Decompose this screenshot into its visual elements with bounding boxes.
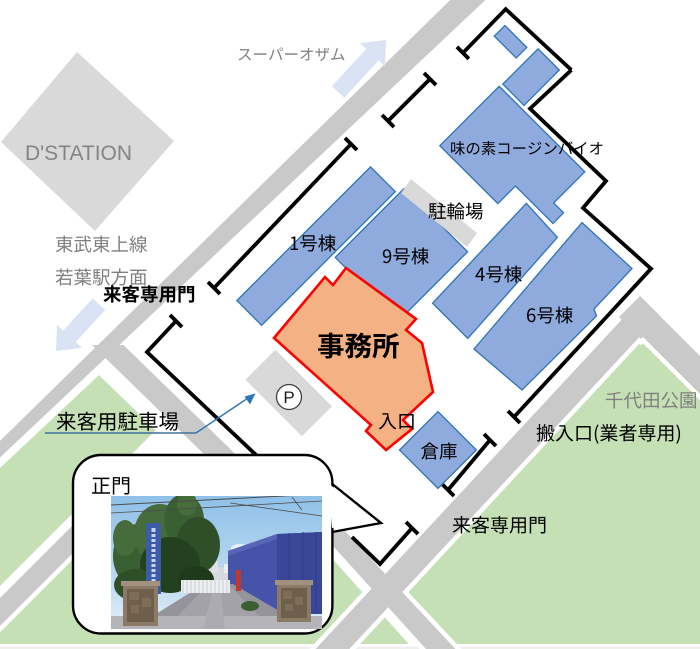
svg-text:P: P [283,388,294,407]
svg-text:D'STATION: D'STATION [25,142,132,165]
